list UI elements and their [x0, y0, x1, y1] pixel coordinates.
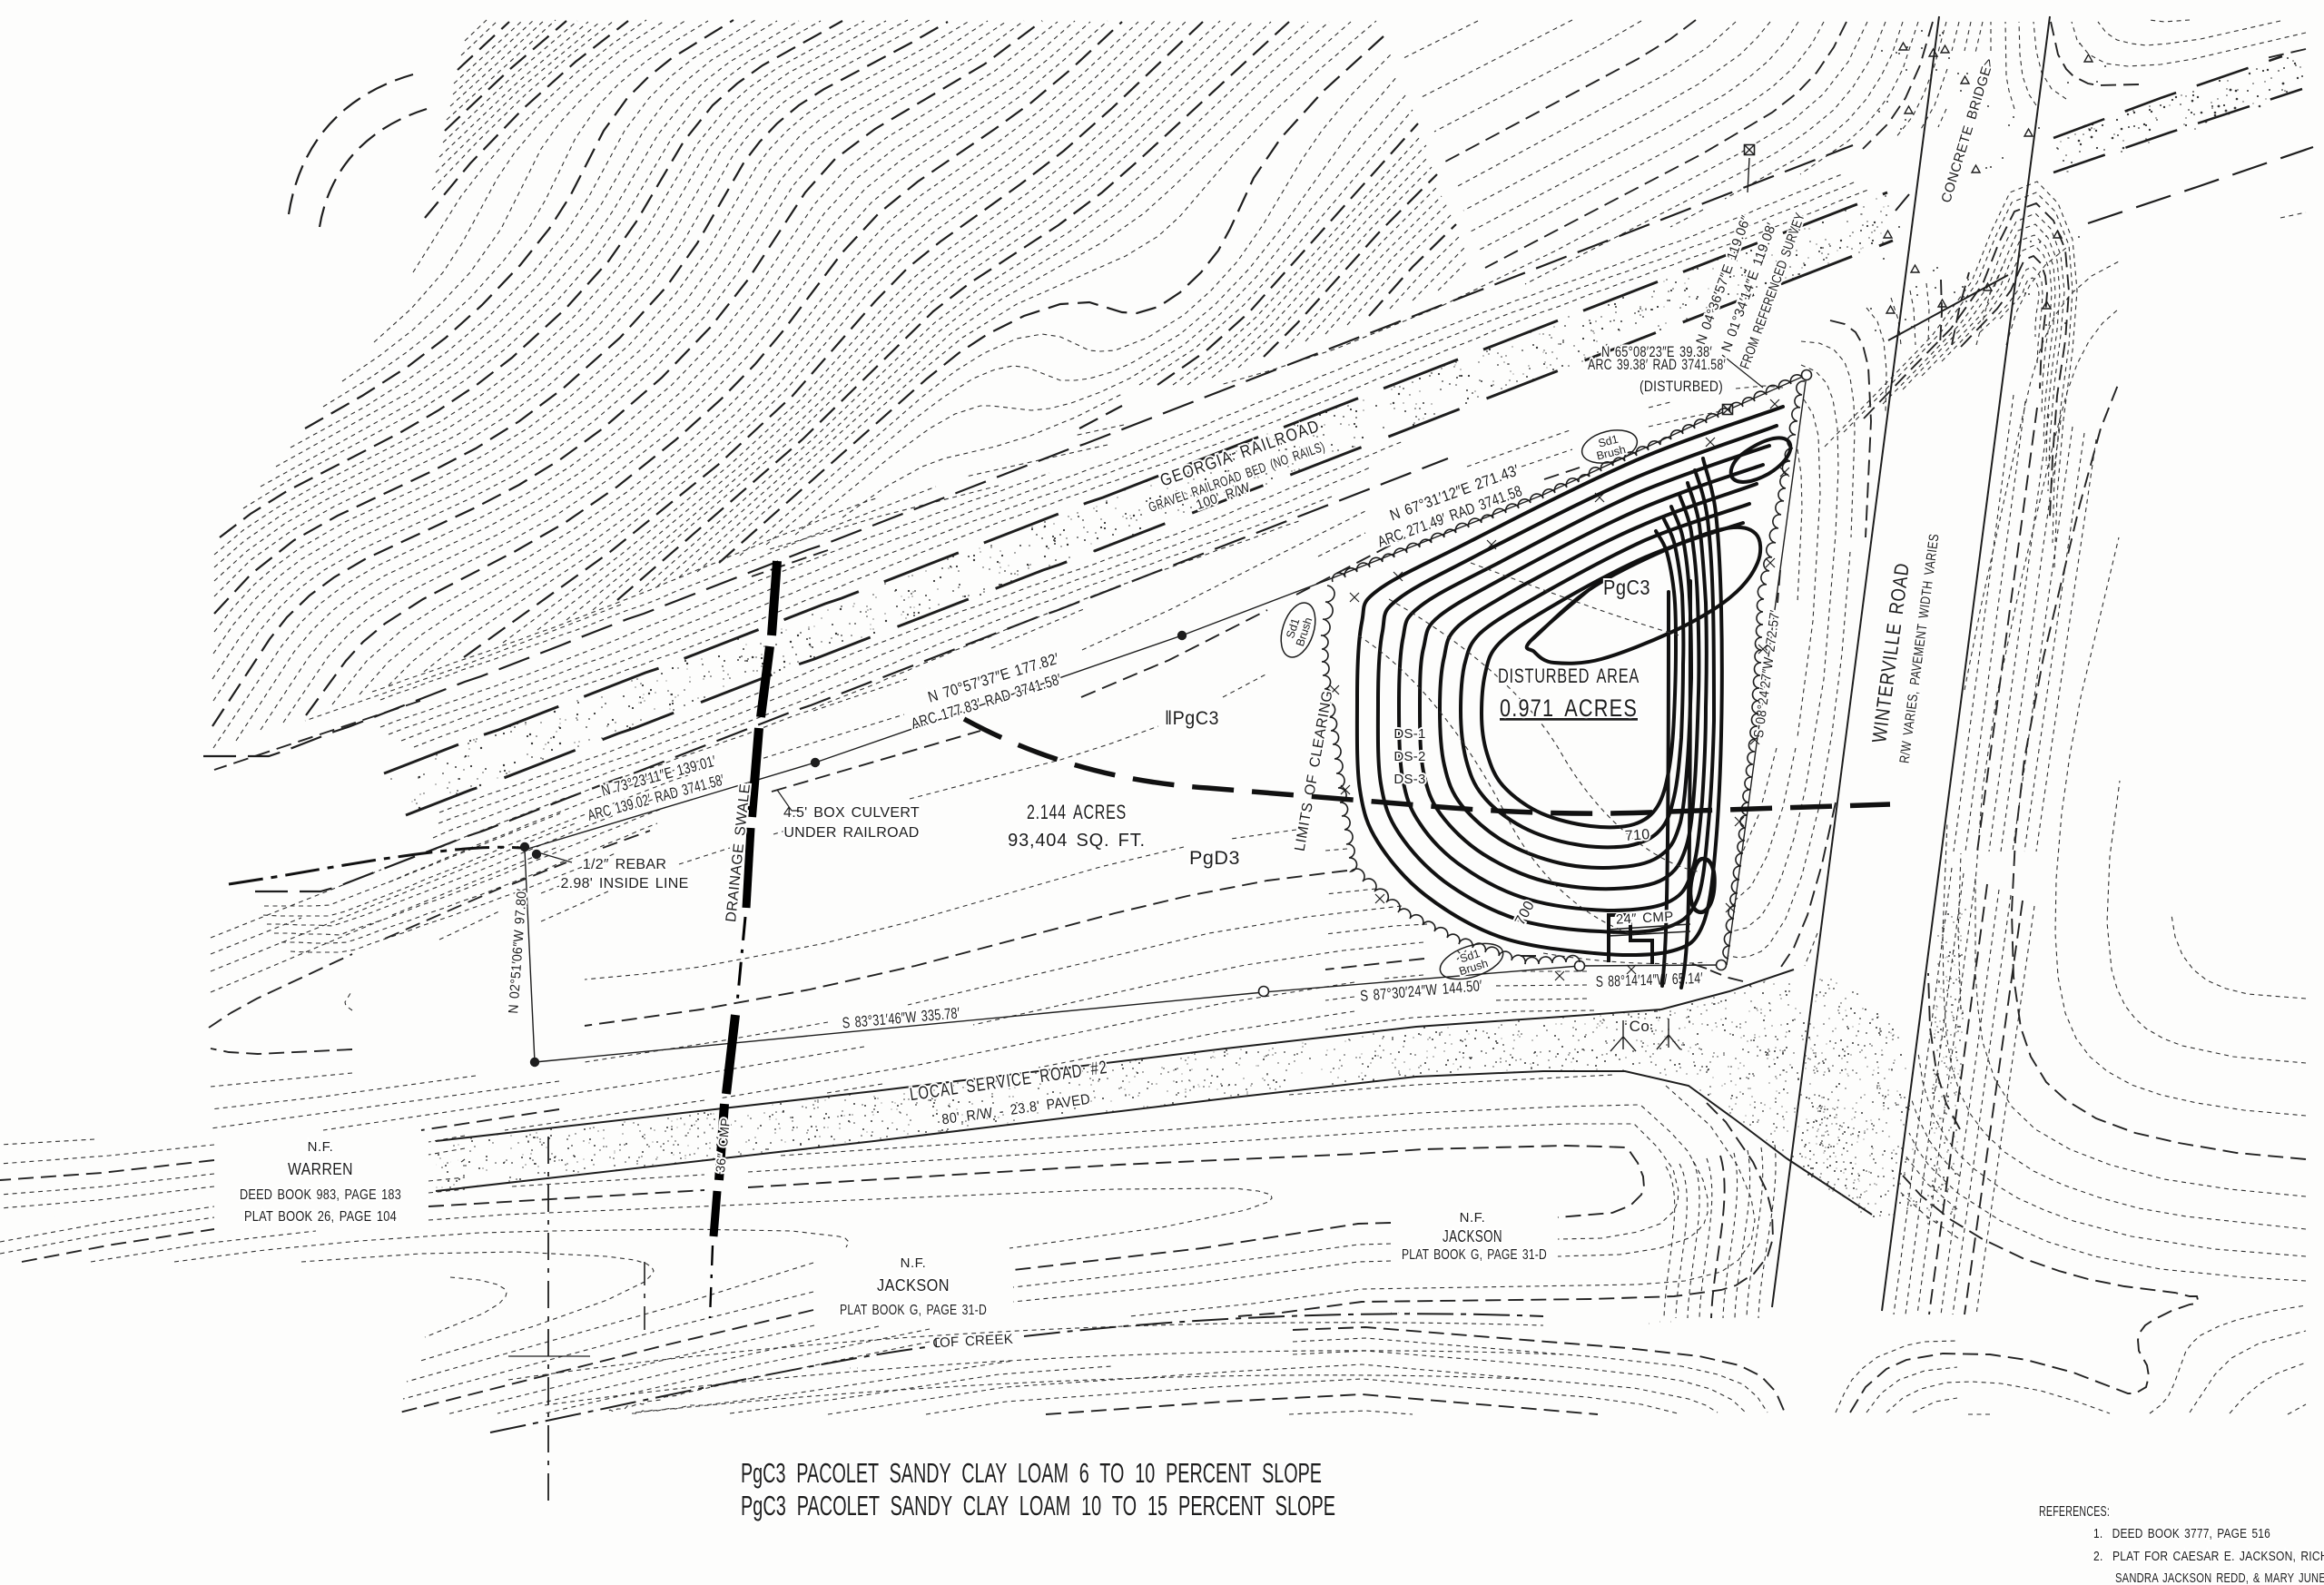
svg-text:PgC3: PgC3 [1603, 576, 1650, 599]
svg-text:PgC3 PACOLET SANDY CLAY LOAM 1: PgC3 PACOLET SANDY CLAY LOAM 10 TO 15 PE… [741, 1490, 1335, 1521]
svg-text:(DISTURBED): (DISTURBED) [1640, 378, 1723, 395]
svg-text:2.144 ACRES: 2.144 ACRES [1027, 801, 1127, 823]
svg-text:2. PLAT FOR CAESAR E. JACKSON: 2. PLAT FOR CAESAR E. JACKSON, RICHARD [2093, 1549, 2324, 1564]
svg-text:DISTURBED AREA: DISTURBED AREA [1498, 665, 1640, 687]
svg-text:ARC 39.38′ RAD 3741.58′: ARC 39.38′ RAD 3741.58′ [1588, 356, 1726, 373]
svg-text:N.F.: N.F. [308, 1139, 334, 1155]
svg-text:24″ CMP: 24″ CMP [1616, 909, 1674, 927]
svg-text:UNDER RAILROAD: UNDER RAILROAD [783, 825, 919, 841]
svg-text:PgC3 PACOLET SANDY CLAY LOAM 6: PgC3 PACOLET SANDY CLAY LOAM 6 TO 10 PER… [741, 1457, 1322, 1489]
svg-text:4.5' BOX CULVERT: 4.5' BOX CULVERT [783, 805, 920, 821]
svg-text:2.98' INSIDE LINE: 2.98' INSIDE LINE [560, 876, 688, 891]
svg-text:Co: Co [1630, 1018, 1650, 1035]
svg-text:WARREN: WARREN [288, 1160, 353, 1178]
svg-text:N.F.: N.F. [901, 1255, 927, 1271]
svg-text:710: 710 [1624, 827, 1650, 844]
svg-text:0.971 ACRES: 0.971 ACRES [1500, 694, 1638, 722]
svg-text:DEED BOOK 983, PAGE 183: DEED BOOK 983, PAGE 183 [240, 1187, 401, 1203]
svg-text:‖PgC3: ‖PgC3 [1165, 708, 1219, 729]
svg-text:PLAT BOOK G, PAGE 31-D: PLAT BOOK G, PAGE 31-D [1402, 1247, 1547, 1263]
svg-text:93,404 SQ. FT.: 93,404 SQ. FT. [1008, 831, 1146, 851]
svg-text:N.F.: N.F. [1460, 1210, 1486, 1226]
svg-text:1/2″ REBAR: 1/2″ REBAR [583, 857, 666, 872]
svg-text:JACKSON: JACKSON [877, 1276, 950, 1295]
svg-text:PLAT BOOK 26, PAGE 104: PLAT BOOK 26, PAGE 104 [244, 1209, 397, 1225]
svg-text:DS-1: DS-1 [1393, 726, 1425, 742]
svg-text:REFERENCES:: REFERENCES: [2039, 1504, 2110, 1520]
svg-text:PLAT BOOK G, PAGE 31-D: PLAT BOOK G, PAGE 31-D [840, 1303, 987, 1318]
svg-text:DS-2: DS-2 [1393, 749, 1425, 764]
svg-text:1. DEED BOOK 3777, PAGE 516: 1. DEED BOOK 3777, PAGE 516 [2093, 1526, 2270, 1541]
svg-text:JACKSON: JACKSON [1443, 1227, 1502, 1245]
svg-text:SANDRA JACKSON REDD, & MARY JU: SANDRA JACKSON REDD, & MARY JUNE [2115, 1570, 2324, 1585]
svg-text:PgD3: PgD3 [1189, 848, 1240, 869]
svg-text:DS-3: DS-3 [1393, 772, 1425, 787]
